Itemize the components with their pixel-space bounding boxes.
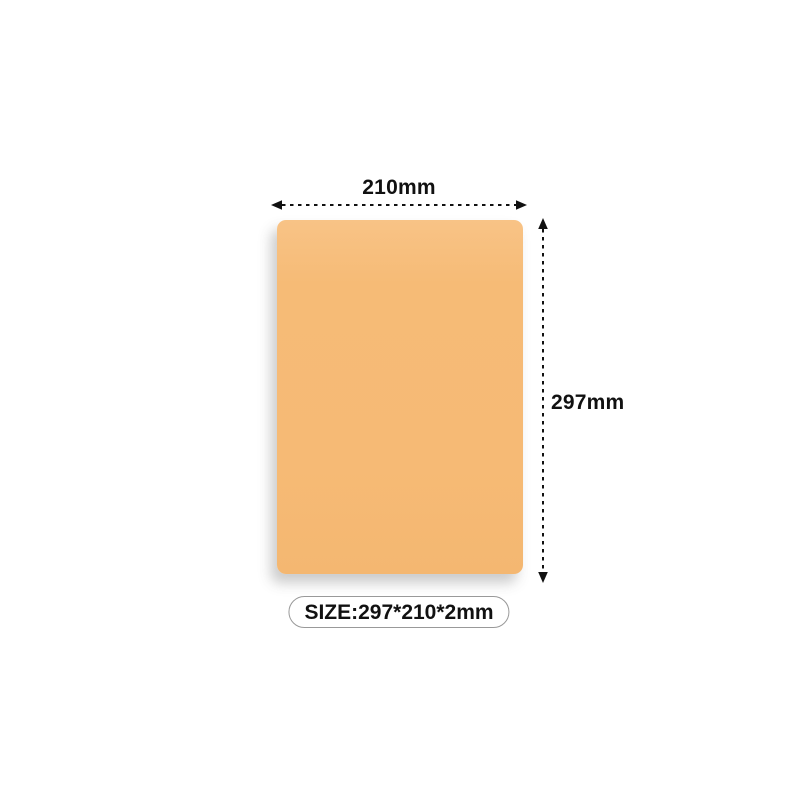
height-dimension-label: 297mm — [551, 391, 624, 415]
width-dimension-label: 210mm — [362, 176, 435, 200]
width-dimension-arrow-icon — [270, 199, 528, 211]
size-badge-label: SIZE:297*210*2mm — [304, 601, 493, 624]
height-dimension-arrow-icon — [537, 217, 549, 584]
size-badge: SIZE:297*210*2mm — [288, 596, 509, 628]
product-sheet — [277, 220, 523, 574]
product-dimension-diagram: 210mm 297mm SIZE:297*210*2mm — [0, 0, 800, 800]
